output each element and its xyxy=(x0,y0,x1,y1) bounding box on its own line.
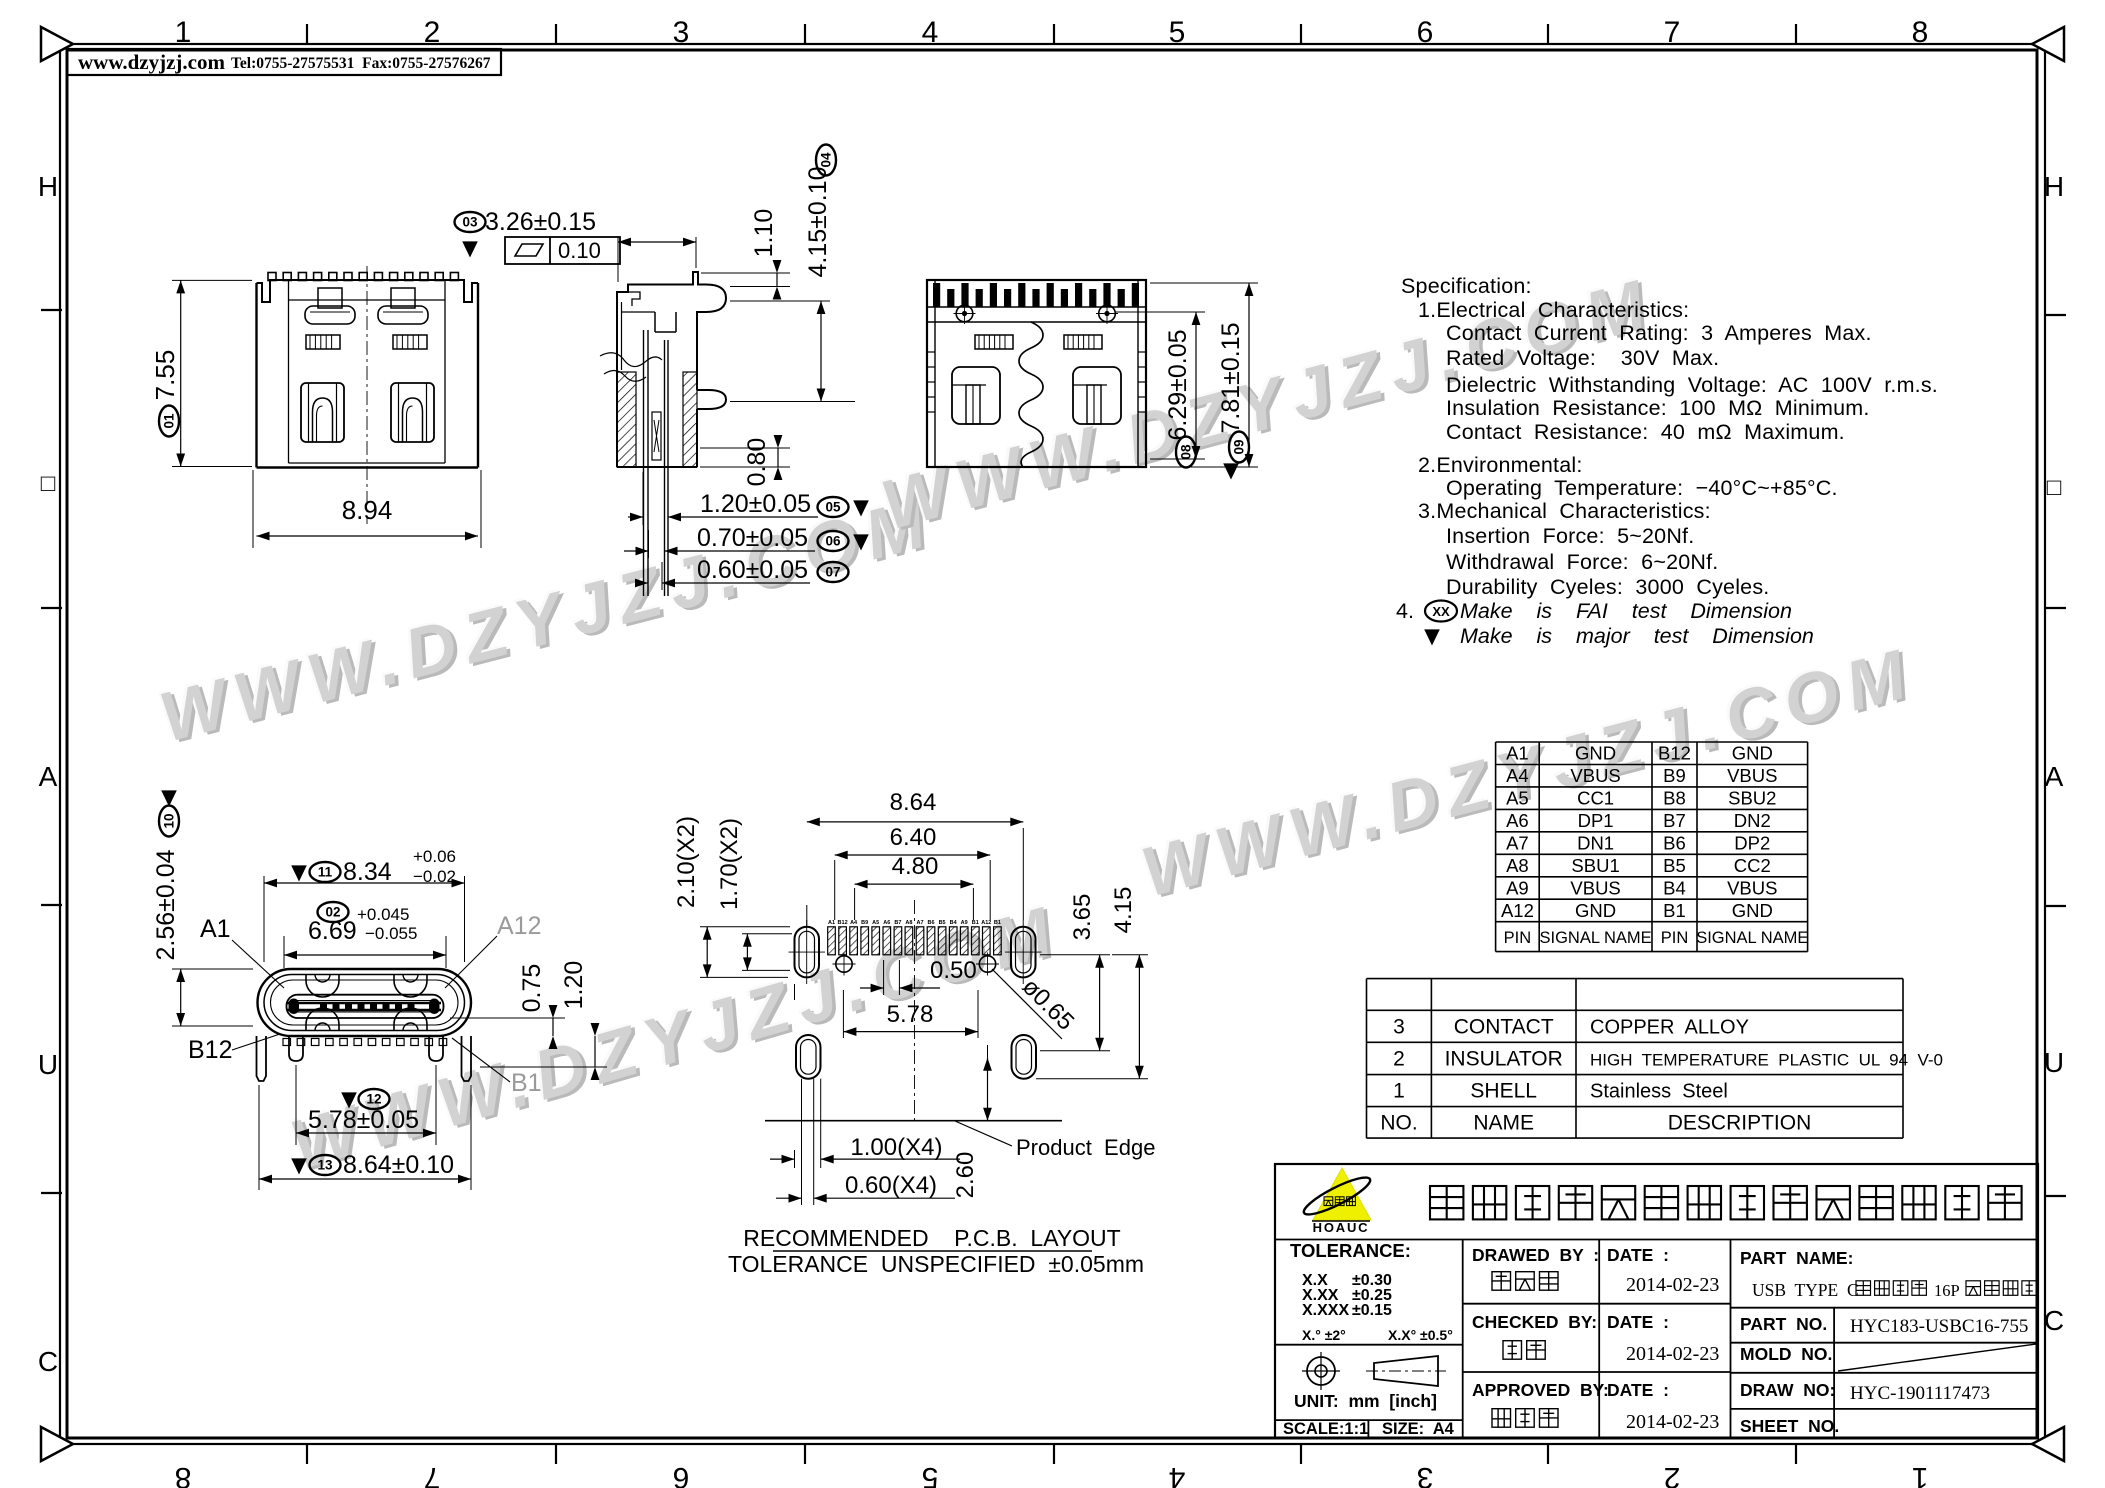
svg-text:B7: B7 xyxy=(894,920,901,926)
svg-text:7.55: 7.55 xyxy=(150,350,180,401)
svg-text:A8: A8 xyxy=(1506,855,1529,876)
svg-text:X.° ±2°: X.° ±2° xyxy=(1302,1327,1346,1343)
svg-text:DN1: DN1 xyxy=(1577,833,1614,854)
svg-text:A9: A9 xyxy=(1506,878,1529,899)
svg-text:8.94: 8.94 xyxy=(342,495,393,525)
svg-text:B6: B6 xyxy=(927,920,934,926)
svg-text:GND: GND xyxy=(1732,900,1773,921)
svg-text:INSULATOR: INSULATOR xyxy=(1445,1047,1563,1070)
svg-text:08: 08 xyxy=(1179,444,1194,460)
svg-text:CC1: CC1 xyxy=(1577,788,1614,809)
svg-text:3: 3 xyxy=(673,16,690,49)
svg-text:6: 6 xyxy=(1417,16,1434,49)
svg-text:B9: B9 xyxy=(861,920,868,926)
svg-text:COPPER ALLOY: COPPER ALLOY xyxy=(1590,1016,1749,1038)
svg-text:0.80: 0.80 xyxy=(743,438,771,487)
svg-text:B12: B12 xyxy=(188,1036,232,1064)
svg-text:DATE :: DATE : xyxy=(1607,1380,1669,1400)
svg-text:DRAW NO:: DRAW NO: xyxy=(1740,1380,1835,1400)
svg-text:SHEET NO.: SHEET NO. xyxy=(1740,1416,1839,1436)
svg-text:A: A xyxy=(39,761,58,792)
svg-text:A9: A9 xyxy=(961,920,968,926)
svg-text:01: 01 xyxy=(162,413,177,429)
svg-text:SIGNAL NAME: SIGNAL NAME xyxy=(1696,929,1808,947)
svg-text:8.64±0.10: 8.64±0.10 xyxy=(343,1151,454,1179)
svg-text:GND: GND xyxy=(1732,743,1773,764)
svg-text:B7: B7 xyxy=(1663,810,1686,831)
svg-text:A: A xyxy=(2045,761,2064,792)
svg-text:DP2: DP2 xyxy=(1734,833,1770,854)
svg-text:2: 2 xyxy=(1664,1461,1681,1488)
svg-text:X.XXX: X.XXX xyxy=(1302,1302,1349,1319)
svg-text:1.70(X2): 1.70(X2) xyxy=(716,818,743,910)
svg-text:A12: A12 xyxy=(981,920,991,926)
svg-text:2.10(X2): 2.10(X2) xyxy=(673,816,700,908)
svg-text:DN2: DN2 xyxy=(1734,810,1771,831)
svg-text:B4: B4 xyxy=(1663,878,1686,899)
svg-text:PIN: PIN xyxy=(1661,929,1689,947)
svg-text:DRAWED BY :: DRAWED BY : xyxy=(1472,1245,1599,1265)
svg-text:A12: A12 xyxy=(497,912,541,940)
svg-text:HYC183-USBC16-755: HYC183-USBC16-755 xyxy=(1850,1316,2028,1337)
svg-text:Specification:: Specification: xyxy=(1401,274,1532,298)
svg-text:0.10: 0.10 xyxy=(558,238,601,263)
svg-text:5.78: 5.78 xyxy=(887,1001,934,1028)
svg-text:H: H xyxy=(38,171,58,202)
svg-text:7.81±0.15: 7.81±0.15 xyxy=(1217,322,1245,433)
svg-text:A6: A6 xyxy=(1506,810,1529,831)
svg-text:U: U xyxy=(38,1049,58,1080)
svg-text:C: C xyxy=(38,1346,58,1377)
svg-text:12: 12 xyxy=(366,1092,381,1107)
svg-text:VBUS: VBUS xyxy=(1570,765,1620,786)
svg-text:B6: B6 xyxy=(1663,833,1686,854)
svg-text:6.29±0.05: 6.29±0.05 xyxy=(1164,329,1192,440)
svg-text:TOLERANCE UNSPECIFIED ±0.05m: TOLERANCE UNSPECIFIED ±0.05mm xyxy=(728,1251,1144,1277)
svg-text:2.56±0.04: 2.56±0.04 xyxy=(152,849,180,960)
svg-text:07: 07 xyxy=(825,565,840,580)
svg-text:www.dzyjzj.com: www.dzyjzj.com xyxy=(78,50,225,74)
svg-text:6.69: 6.69 xyxy=(308,917,357,945)
svg-text:SBU1: SBU1 xyxy=(1571,855,1619,876)
svg-text:4: 4 xyxy=(1169,1461,1186,1488)
svg-text:NO.: NO. xyxy=(1380,1111,1417,1134)
svg-text:Insertion Force: 5~20Nf.: Insertion Force: 5~20Nf. xyxy=(1446,524,1694,548)
svg-text:1: 1 xyxy=(1912,1461,1929,1488)
svg-text:USB TYPE C: USB TYPE C xyxy=(1752,1280,1859,1300)
svg-text:0.60±0.05: 0.60±0.05 xyxy=(697,556,808,584)
svg-text:B5: B5 xyxy=(1663,855,1686,876)
svg-text:DATE :: DATE : xyxy=(1607,1245,1669,1265)
svg-text:Tel:0755-27575531 Fax:0755-27: Tel:0755-27575531 Fax:0755-27576267 xyxy=(231,55,491,72)
svg-text:3.Mechanical Characteristics:: 3.Mechanical Characteristics: xyxy=(1418,499,1711,523)
svg-text:A7: A7 xyxy=(916,920,923,926)
svg-text:TOLERANCE:: TOLERANCE: xyxy=(1290,1240,1411,1261)
svg-text:C: C xyxy=(2044,1305,2064,1336)
svg-text:8: 8 xyxy=(1912,16,1929,49)
svg-text:SIGNAL NAME: SIGNAL NAME xyxy=(1540,929,1652,947)
svg-text:A8: A8 xyxy=(905,920,912,926)
svg-text:05: 05 xyxy=(825,500,841,515)
svg-text:2.60: 2.60 xyxy=(952,1152,979,1199)
svg-text:Contact Resistance: 40 mΩ: Contact Resistance: 40 mΩ Maximum. xyxy=(1446,420,1845,444)
svg-text:GND: GND xyxy=(1575,743,1616,764)
svg-text:SBU2: SBU2 xyxy=(1728,788,1776,809)
svg-text:A6: A6 xyxy=(883,920,890,926)
svg-text:1: 1 xyxy=(175,16,192,49)
svg-text:3.65: 3.65 xyxy=(1069,894,1096,941)
svg-text:2: 2 xyxy=(424,16,441,49)
svg-text:0.60(X4): 0.60(X4) xyxy=(845,1172,937,1199)
svg-text:H: H xyxy=(2044,171,2064,202)
svg-text:A5: A5 xyxy=(1506,788,1529,809)
svg-text:Operating Temperature: −40°C: Operating Temperature: −40°C~+85°C. xyxy=(1446,476,1838,500)
svg-text:11: 11 xyxy=(318,865,333,880)
svg-text:DP1: DP1 xyxy=(1578,810,1614,831)
svg-text:B1: B1 xyxy=(511,1069,542,1097)
svg-text:RECOMMENDED P.C.B. LAYOUT: RECOMMENDED P.C.B. LAYOUT xyxy=(743,1225,1120,1251)
svg-text:8: 8 xyxy=(175,1461,192,1488)
svg-text:1.10: 1.10 xyxy=(750,209,778,258)
svg-text:+0.06: +0.06 xyxy=(413,847,456,866)
svg-text:A12: A12 xyxy=(1501,900,1534,921)
svg-text:B8: B8 xyxy=(1663,788,1686,809)
svg-text:B12: B12 xyxy=(1658,743,1691,764)
svg-text:DATE :: DATE : xyxy=(1607,1312,1669,1332)
svg-text:3: 3 xyxy=(1417,1461,1434,1488)
svg-text:5.78±0.05: 5.78±0.05 xyxy=(308,1106,419,1134)
svg-text:GND: GND xyxy=(1575,900,1616,921)
svg-text:VBUS: VBUS xyxy=(1570,878,1620,899)
svg-text:4.15±0.10: 4.15±0.10 xyxy=(804,166,832,277)
svg-text:A7: A7 xyxy=(1506,833,1529,854)
svg-text:Insulation Resistance: 100: Insulation Resistance: 100 MΩ Minimum. xyxy=(1446,396,1870,420)
svg-text:□: □ xyxy=(41,470,56,497)
svg-text:A4: A4 xyxy=(1506,765,1529,786)
svg-text:VBUS: VBUS xyxy=(1727,878,1777,899)
svg-text:CHECKED BY:: CHECKED BY: xyxy=(1472,1312,1597,1332)
svg-text:HOAUC: HOAUC xyxy=(1313,1220,1370,1235)
svg-text:HYC-1901117473: HYC-1901117473 xyxy=(1850,1383,1990,1404)
svg-text:Durability Cyeles: 3000 Cye: Durability Cyeles: 3000 Cyeles. xyxy=(1446,575,1769,599)
svg-text:NAME: NAME xyxy=(1473,1111,1534,1134)
svg-text:±0.15: ±0.15 xyxy=(1352,1302,1392,1319)
svg-text:1: 1 xyxy=(1393,1080,1405,1103)
svg-text:Withdrawal Force: 6~20Nf.: Withdrawal Force: 6~20Nf. xyxy=(1446,550,1718,574)
svg-text:4.: 4. xyxy=(1396,599,1414,623)
svg-text:2014-02-23: 2014-02-23 xyxy=(1626,1274,1719,1296)
svg-text:CC2: CC2 xyxy=(1734,855,1771,876)
svg-text:−0.055: −0.055 xyxy=(365,924,417,943)
svg-text:APPROVED BY:: APPROVED BY: xyxy=(1472,1380,1609,1400)
svg-text:13: 13 xyxy=(317,1158,333,1173)
svg-text:10: 10 xyxy=(162,813,177,828)
svg-text:2014-02-23: 2014-02-23 xyxy=(1626,1343,1719,1365)
svg-text:09: 09 xyxy=(1232,439,1247,454)
svg-text:A4: A4 xyxy=(850,920,858,926)
svg-text:PART NAME:: PART NAME: xyxy=(1740,1248,1853,1268)
svg-text:0.70±0.05: 0.70±0.05 xyxy=(697,524,808,552)
svg-text:SHELL: SHELL xyxy=(1470,1080,1537,1103)
svg-text:B9: B9 xyxy=(1663,765,1686,786)
svg-text:Dielectric Withstanding Volt: Dielectric Withstanding Voltage: AC 100V… xyxy=(1446,373,1938,397)
svg-text:B5: B5 xyxy=(939,920,946,926)
svg-text:A1: A1 xyxy=(1506,743,1529,764)
svg-text:DESCRIPTION: DESCRIPTION xyxy=(1668,1111,1812,1134)
svg-text:8.64: 8.64 xyxy=(890,789,937,816)
svg-text:16P: 16P xyxy=(1934,1281,1960,1300)
svg-text:A1: A1 xyxy=(828,920,835,926)
svg-text:PART NO.: PART NO. xyxy=(1740,1314,1827,1334)
svg-text:5: 5 xyxy=(922,1461,939,1488)
svg-text:SCALE:1:1: SCALE:1:1 xyxy=(1283,1420,1368,1438)
svg-text:1.20±0.05: 1.20±0.05 xyxy=(700,490,811,518)
svg-text:A1: A1 xyxy=(200,915,231,943)
svg-text:B1: B1 xyxy=(972,920,979,926)
svg-text:2.Environmental:: 2.Environmental: xyxy=(1418,453,1583,477)
svg-text:B1: B1 xyxy=(994,920,1001,926)
svg-text:Contact Current Rating: 3: Contact Current Rating: 3 Amperes Max. xyxy=(1446,321,1872,345)
svg-text:XX: XX xyxy=(1432,604,1450,619)
svg-text:VBUS: VBUS xyxy=(1727,765,1777,786)
svg-text:5: 5 xyxy=(1169,16,1186,49)
svg-text:3: 3 xyxy=(1393,1015,1405,1038)
svg-text:B4: B4 xyxy=(950,920,958,926)
svg-text:SIZE: A4: SIZE: A4 xyxy=(1382,1420,1455,1438)
svg-text:4.80: 4.80 xyxy=(892,853,939,880)
svg-text:B1: B1 xyxy=(1663,900,1686,921)
svg-text:CONTACT: CONTACT xyxy=(1454,1015,1554,1038)
svg-text:06: 06 xyxy=(825,534,841,549)
svg-text:PIN: PIN xyxy=(1504,929,1532,947)
svg-text:2014-02-23: 2014-02-23 xyxy=(1626,1411,1719,1433)
svg-text:1.00(X4): 1.00(X4) xyxy=(850,1134,942,1161)
svg-text:7: 7 xyxy=(1664,16,1681,49)
svg-text:1.20: 1.20 xyxy=(560,961,588,1010)
svg-text:U: U xyxy=(2044,1047,2064,1078)
svg-text:4: 4 xyxy=(922,16,939,49)
svg-text:2: 2 xyxy=(1393,1047,1405,1070)
svg-text:Product Edge: Product Edge xyxy=(1016,1135,1155,1160)
svg-text:7: 7 xyxy=(424,1461,441,1488)
svg-text:UNIT: mm [inch]: UNIT: mm [inch] xyxy=(1294,1391,1437,1411)
svg-text:4.15: 4.15 xyxy=(1110,887,1137,934)
svg-text:6.40: 6.40 xyxy=(890,824,937,851)
svg-text:Stainless Steel: Stainless Steel xyxy=(1590,1081,1728,1103)
svg-text:03: 03 xyxy=(462,215,478,230)
svg-text:3.26±0.15: 3.26±0.15 xyxy=(485,208,596,236)
svg-text:HIGH TEMPERATURE PLASTIC UL: HIGH TEMPERATURE PLASTIC UL 94 V-0 xyxy=(1590,1050,1943,1069)
svg-text:Make is FAI test Dimension: Make is FAI test Dimension xyxy=(1460,599,1792,623)
svg-text:+0.045: +0.045 xyxy=(357,905,409,924)
svg-text:04: 04 xyxy=(819,152,834,168)
svg-text:A5: A5 xyxy=(872,920,879,926)
svg-text:0.50: 0.50 xyxy=(930,957,977,984)
svg-text:0.75: 0.75 xyxy=(518,964,546,1013)
svg-text:X.X° ±0.5°: X.X° ±0.5° xyxy=(1388,1327,1453,1343)
svg-text:Rated Voltage: 30V Max.: Rated Voltage: 30V Max. xyxy=(1446,346,1719,370)
svg-text:1.Electrical Characteristics:: 1.Electrical Characteristics: xyxy=(1418,298,1689,322)
svg-text:□: □ xyxy=(2047,474,2062,501)
svg-text:Make is major test Dimensi: Make is major test Dimension xyxy=(1460,624,1814,648)
svg-text:8.34: 8.34 xyxy=(343,858,392,886)
svg-text:MOLD NO.: MOLD NO. xyxy=(1740,1344,1832,1364)
svg-text:6: 6 xyxy=(673,1461,690,1488)
svg-text:B12: B12 xyxy=(838,920,848,926)
